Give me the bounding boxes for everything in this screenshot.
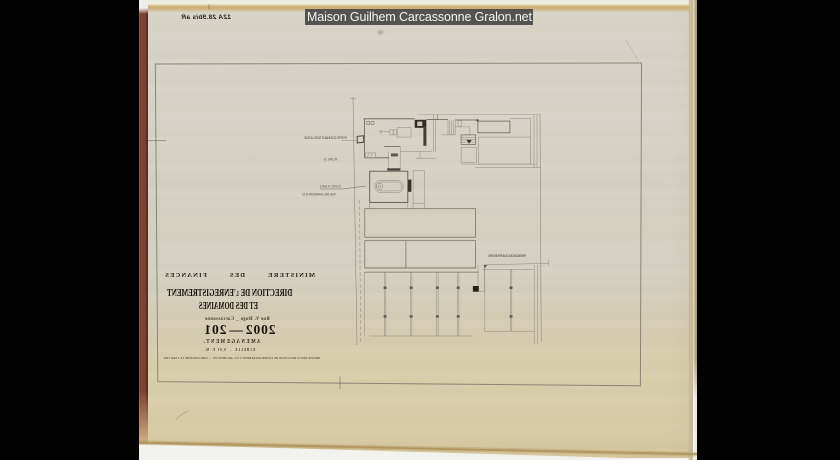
svg-text:PORTE DONNANT SUR LA RUE: PORTE DONNANT SUR LA RUE xyxy=(303,136,347,140)
svg-text:VUE DE LA MAISON N 12: VUE DE LA MAISON N 12 xyxy=(302,193,336,197)
svg-text:PLAN. S: PLAN. S xyxy=(323,158,337,162)
svg-text:PASSAGE A CIEL OUVERT MITOYEN: PASSAGE A CIEL OUVERT MITOYEN xyxy=(487,254,526,258)
svg-text:CUVE A EAU: CUVE A EAU xyxy=(319,185,341,189)
